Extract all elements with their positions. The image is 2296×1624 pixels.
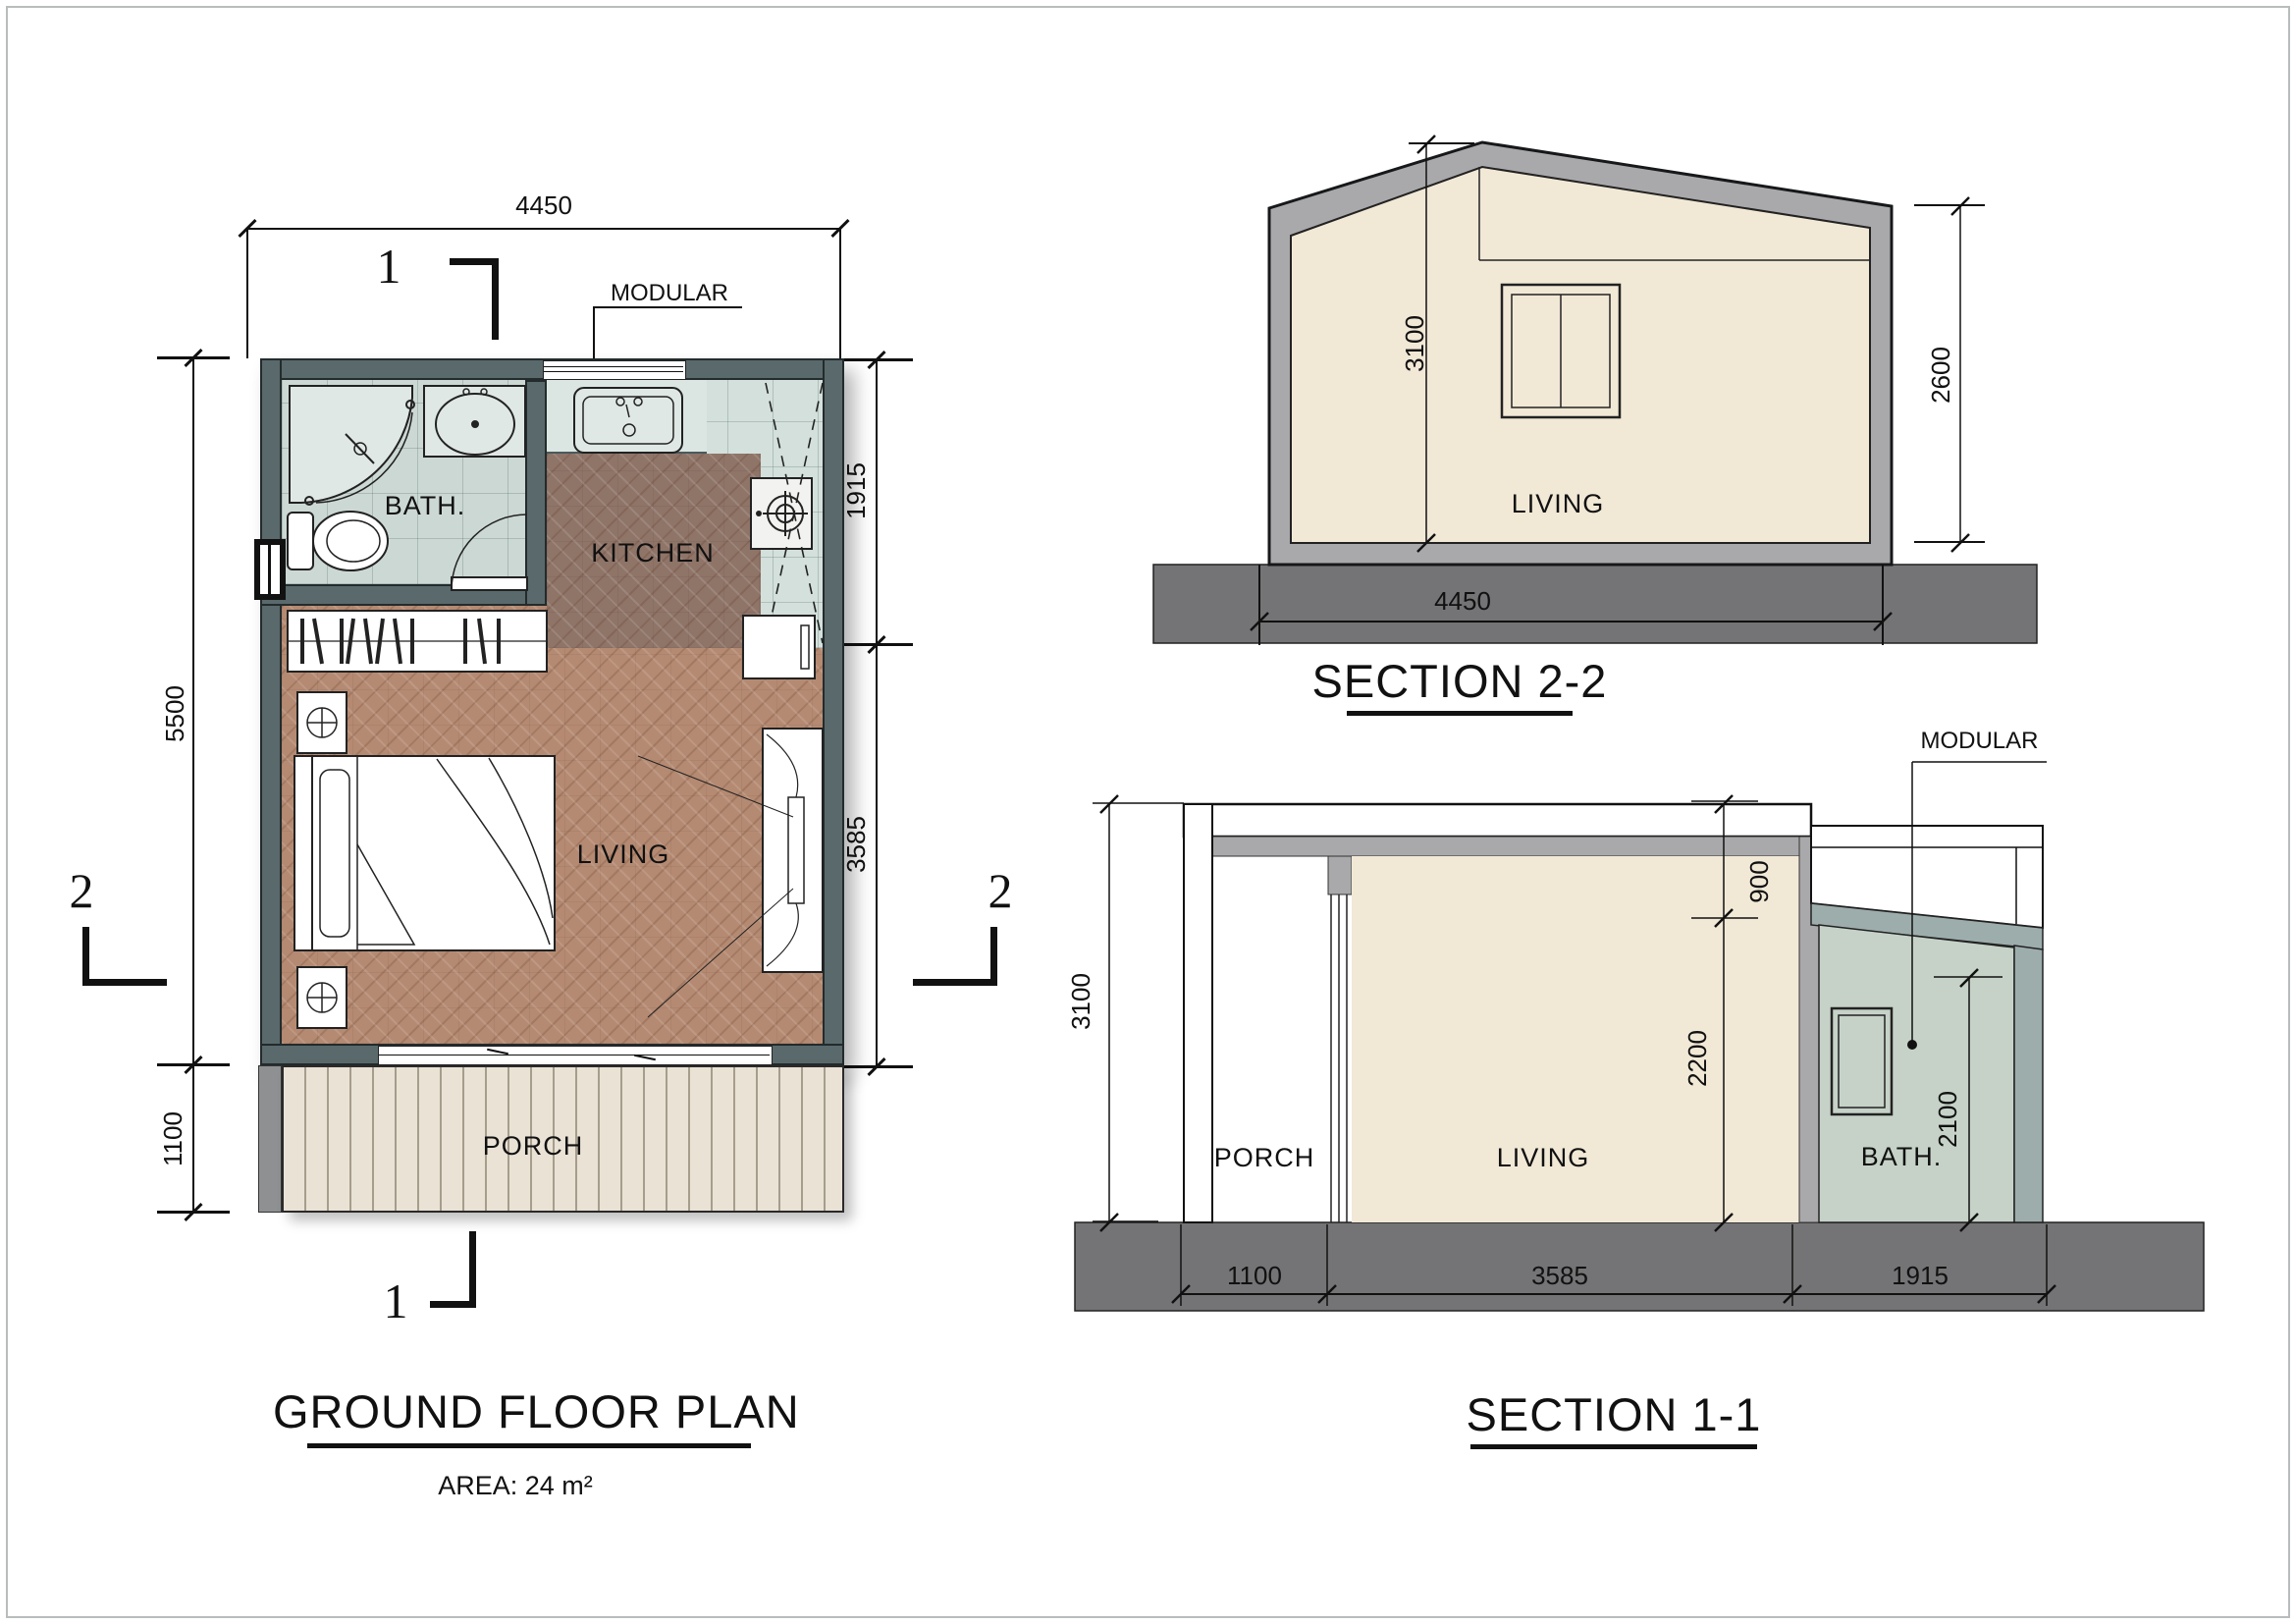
section22-ground (1153, 565, 2037, 643)
nightstand-icon (297, 692, 347, 753)
section22-window-icon (1502, 285, 1620, 417)
nightstand-icon (297, 967, 347, 1028)
section11-porch-label: PORCH (1201, 1143, 1328, 1172)
shower-icon (290, 386, 414, 505)
section-marker-2-right-symbol (913, 979, 997, 986)
bath-door-icon (452, 514, 527, 590)
plan-living-label: LIVING (564, 839, 682, 869)
section-marker-1-bottom-symbol (469, 1231, 476, 1308)
section-marker-2-left-symbol (82, 927, 89, 986)
plan-dim-line-left (192, 358, 194, 1213)
stove-icon (751, 478, 812, 549)
section11-title-underline (1470, 1444, 1757, 1449)
plan-area-label: AREA: 24 m² (388, 1471, 643, 1500)
section-marker-2-left: 2 (57, 866, 106, 915)
section11-bath-label: BATH. (1842, 1142, 1960, 1171)
plan-dim-left-porch: 1100 (158, 1095, 187, 1183)
section11-title: SECTION 1-1 (1437, 1389, 1790, 1440)
kitchen-sink-icon (574, 388, 682, 453)
section-marker-1-top-symbol (492, 258, 499, 340)
plan-dim-ext-right (839, 229, 841, 360)
toilet-icon (288, 512, 388, 570)
plan-dim-ext-left (246, 229, 248, 358)
section22-living-label: LIVING (1484, 489, 1631, 518)
section-marker-1-bottom-symbol (430, 1301, 476, 1308)
section22-dim-width: 4450 (1414, 586, 1512, 616)
tv-stand-icon (743, 616, 815, 678)
section11-dim-roof: 900 (1744, 847, 1774, 916)
section11-dim-living: 2200 (1682, 1004, 1712, 1112)
section22-dim-ridge: 3100 (1400, 290, 1429, 398)
plan-modular-leader (593, 306, 742, 308)
plan-title-underline (307, 1443, 751, 1448)
bath-sink-icon (424, 386, 525, 457)
section22-title-underline (1347, 711, 1573, 716)
section11-dim-total: 3100 (1066, 947, 1095, 1056)
section22-dim-eave: 2600 (1926, 321, 1955, 429)
section11-bath-fill (1819, 925, 2014, 1222)
section-marker-2-right: 2 (976, 866, 1025, 915)
plan-bath-label: BATH. (366, 491, 484, 520)
section11-modular-label: MODULAR (1908, 727, 2051, 756)
section-marker-1-bottom: 1 (371, 1276, 420, 1326)
plan-dim-line-right (876, 360, 878, 1067)
section11-door-lines (1331, 894, 1347, 1222)
bed-icon (294, 756, 555, 950)
wardrobe-icon (638, 729, 823, 1017)
plan-dim-line-top (246, 228, 841, 230)
section-1-1-drawing (1065, 717, 2296, 1443)
section11-dim-bath-w: 1915 (1861, 1261, 1979, 1290)
section11-living-label: LIVING (1479, 1143, 1607, 1172)
section-marker-2-left-symbol (82, 979, 167, 986)
plan-dim-left-height: 5500 (160, 660, 189, 768)
section11-dim-living-w: 3585 (1501, 1261, 1619, 1290)
plan-title: GROUND FLOOR PLAN (273, 1386, 783, 1437)
plan-modular-label: MODULAR (597, 279, 742, 308)
section22-title: SECTION 2-2 (1283, 656, 1636, 707)
section11-dim-porch-w: 1100 (1196, 1261, 1313, 1290)
plan-dim-top-width: 4450 (495, 190, 593, 220)
section11-dim-total-lines (1093, 795, 1184, 1231)
plan-fixtures (255, 353, 854, 1218)
section-marker-2-right-symbol (990, 927, 997, 986)
plan-kitchen-label: KITCHEN (574, 538, 731, 568)
section-2-2-drawing (1109, 98, 2061, 746)
section-marker-1-top: 1 (359, 242, 418, 291)
bookshelf-icon (288, 611, 547, 672)
plan-porch-label: PORCH (474, 1131, 592, 1161)
architectural-drawing-sheet: 4450 1 MODULAR 5500 1100 1915 3585 2 2 1 (0, 0, 2296, 1624)
